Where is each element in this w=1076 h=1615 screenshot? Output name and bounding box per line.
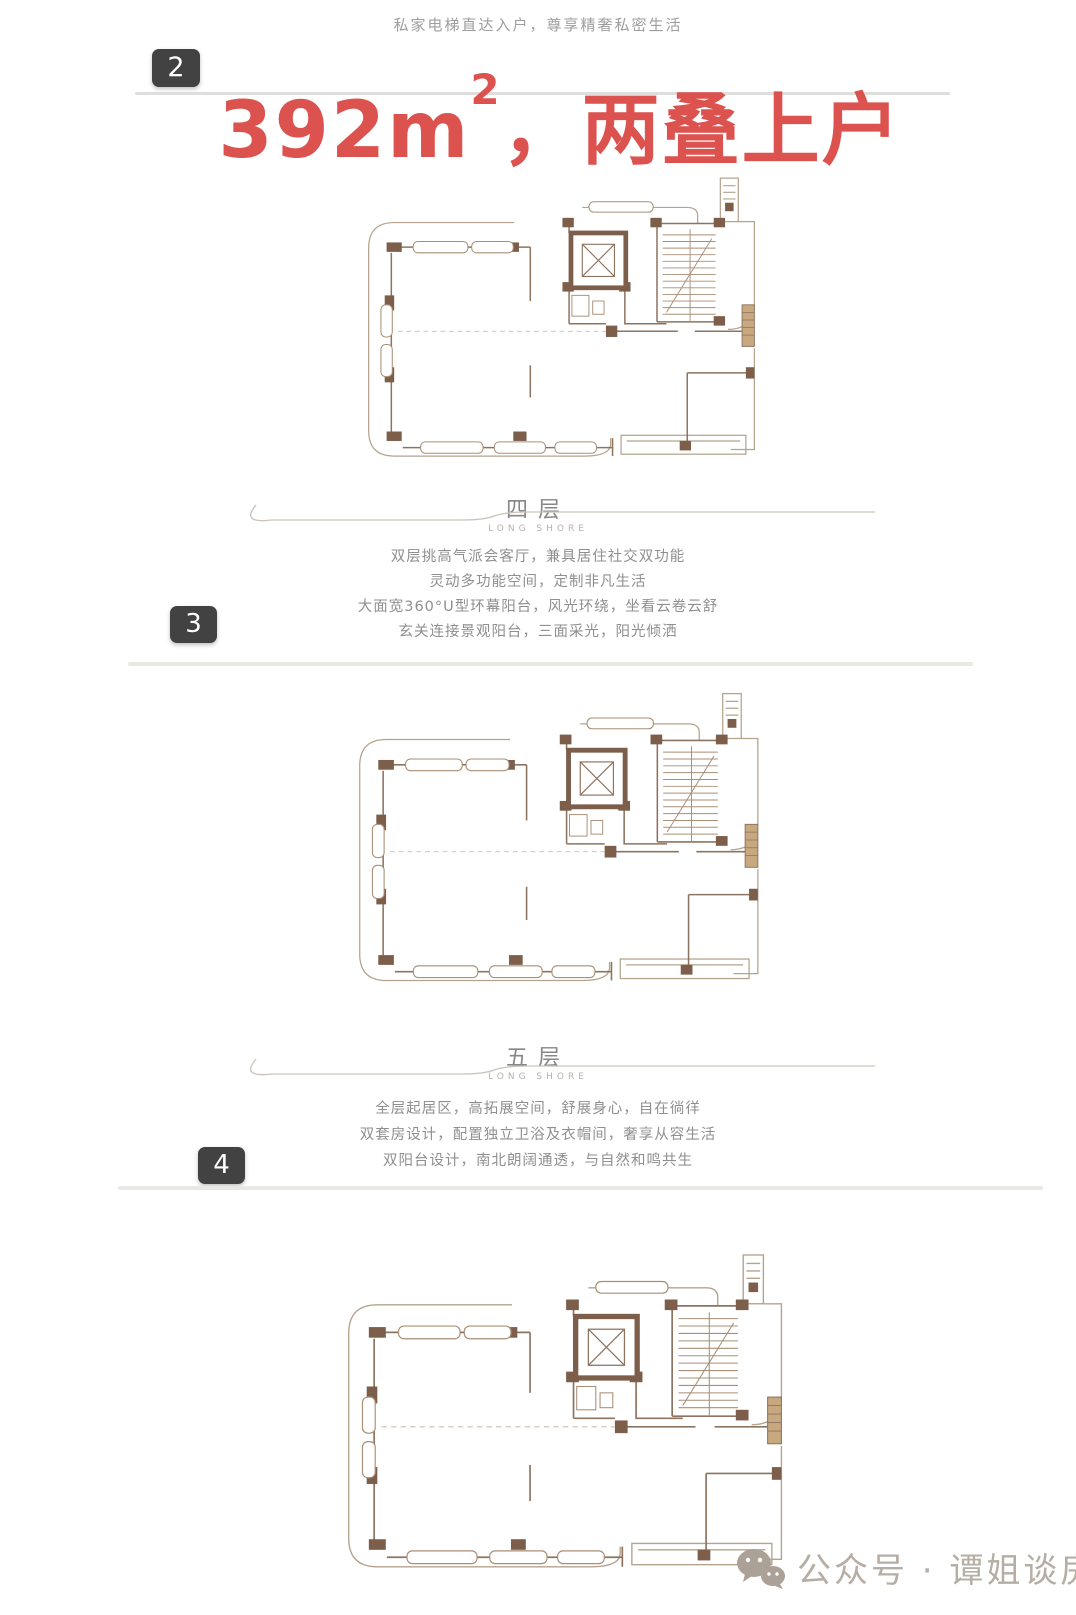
caption-line: 玄关连接景观阳台，三面采光，阳光倾洒 bbox=[0, 620, 1076, 645]
floor-5-caption: 全层起居区，高拓展空间，舒展身心，自在徜徉 双套房设计，配置独立卫浴及衣帽间，奢… bbox=[0, 1096, 1076, 1174]
floor-5-plan bbox=[332, 678, 768, 1000]
caption-line: 全层起居区，高拓展空间，舒展身心，自在徜徉 bbox=[0, 1096, 1076, 1122]
section-divider bbox=[118, 1186, 1043, 1190]
flyer-page: 私家电梯直达入户，尊享精奢私密生活 2 392m2，两叠上户 四层 LONG S… bbox=[0, 0, 1076, 1615]
caption-line: 双套房设计，配置独立卫浴及衣帽间，奢享从容生活 bbox=[0, 1122, 1076, 1148]
floor-5-subtitle: LONG SHORE bbox=[0, 1072, 1076, 1082]
caption-line: 双层挑高气派会客厅，兼具居住社交双功能 bbox=[0, 545, 1076, 570]
floor-4-plan bbox=[338, 163, 768, 475]
watermark-text: 公众号 · 谭姐谈房 bbox=[797, 1543, 1076, 1592]
floor-4-subtitle: LONG SHORE bbox=[0, 524, 1076, 534]
page-header-tagline: 私家电梯直达入户，尊享精奢私密生活 bbox=[0, 14, 1076, 35]
caption-line: 大面宽360°U型环幕阳台，风光环绕，坐看云卷云舒 bbox=[0, 595, 1076, 620]
slide-badge-3: 3 bbox=[170, 606, 217, 643]
title-area-sup: 2 bbox=[470, 65, 501, 114]
slide-badge-4: 4 bbox=[198, 1147, 245, 1184]
caption-line: 灵动多功能空间，定制非凡生活 bbox=[0, 570, 1076, 595]
divider-curve bbox=[230, 1034, 950, 1104]
divider-curve bbox=[230, 480, 950, 550]
caption-line: 双阳台设计，南北朗阔通透，与自然和鸣共生 bbox=[0, 1148, 1076, 1174]
section-divider bbox=[128, 662, 973, 666]
floor-6-plan bbox=[322, 1238, 789, 1588]
floor-4-caption: 双层挑高气派会客厅，兼具居住社交双功能 灵动多功能空间，定制非凡生活 大面宽36… bbox=[0, 545, 1076, 645]
watermark: 公众号 · 谭姐谈房 bbox=[735, 1543, 1076, 1592]
wechat-icon bbox=[735, 1546, 787, 1590]
